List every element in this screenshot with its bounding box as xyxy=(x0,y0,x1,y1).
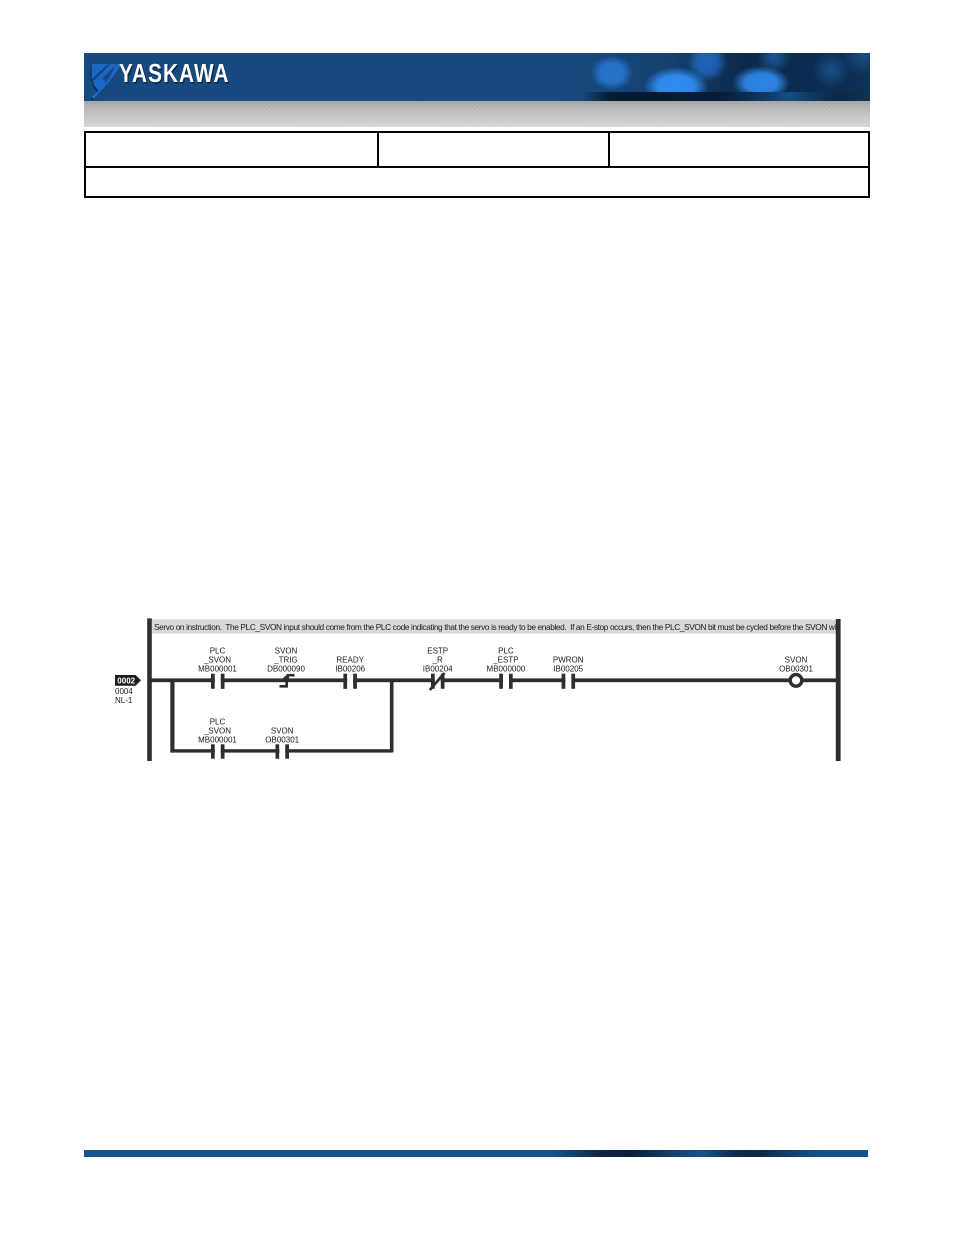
svg-text:IB00206: IB00206 xyxy=(335,665,365,674)
svg-text:OB00301: OB00301 xyxy=(265,736,299,745)
svg-text:Servo on instruction. The PLC: Servo on instruction. The PLC_SVON input… xyxy=(154,622,880,632)
svg-text:MB000000: MB000000 xyxy=(487,665,526,674)
svg-text:ESTP: ESTP xyxy=(427,647,448,656)
svg-text:_TRIG: _TRIG xyxy=(273,656,298,665)
svg-text:PLC: PLC xyxy=(498,647,514,656)
svg-text:PWRON: PWRON xyxy=(553,656,584,665)
svg-text:IB00204: IB00204 xyxy=(423,665,453,674)
svg-text:OB00301: OB00301 xyxy=(779,665,813,674)
svg-text:0002: 0002 xyxy=(117,676,135,685)
svg-text:_ESTP: _ESTP xyxy=(492,656,518,665)
svg-text:READY: READY xyxy=(336,656,364,665)
svg-text:NL-1: NL-1 xyxy=(115,696,133,705)
svg-text:_R: _R xyxy=(432,656,443,665)
svg-text:PLC: PLC xyxy=(210,647,226,656)
svg-text:0004: 0004 xyxy=(115,687,133,696)
svg-text:SVON: SVON xyxy=(275,647,298,656)
svg-text:DB000090: DB000090 xyxy=(267,665,305,674)
svg-text:_SVON: _SVON xyxy=(203,727,231,736)
svg-text:MB000001: MB000001 xyxy=(198,736,237,745)
svg-text:_SVON: _SVON xyxy=(203,656,231,665)
svg-text:SVON: SVON xyxy=(271,727,294,736)
svg-text:MB000001: MB000001 xyxy=(198,665,237,674)
svg-text:IB00205: IB00205 xyxy=(553,665,583,674)
svg-text:SVON: SVON xyxy=(785,656,808,665)
svg-text:PLC: PLC xyxy=(210,718,226,727)
